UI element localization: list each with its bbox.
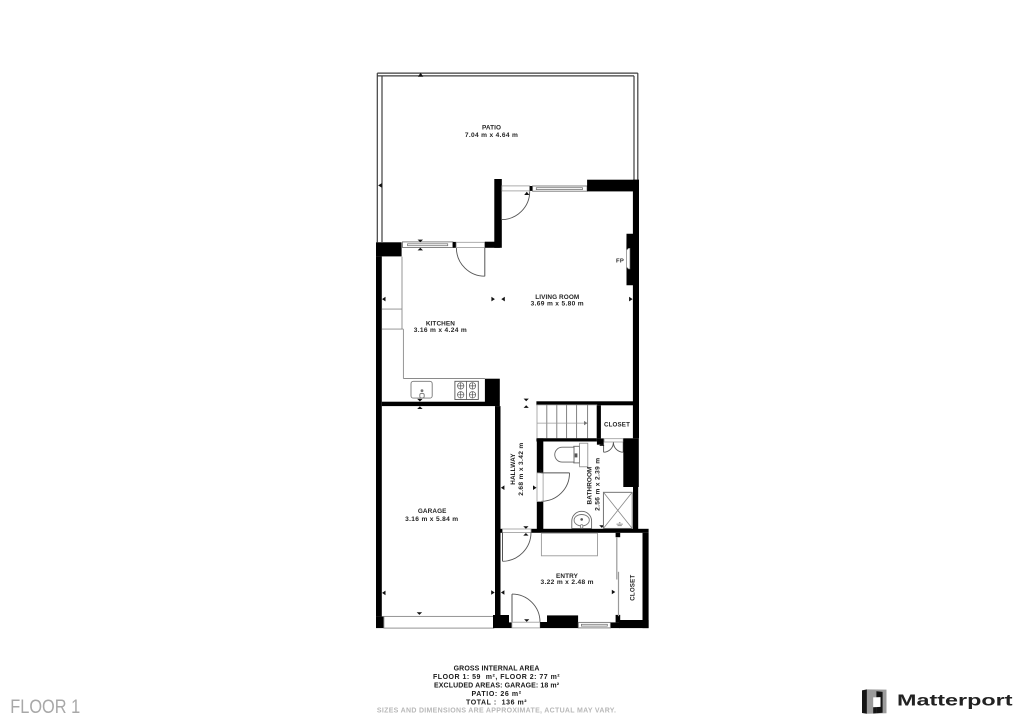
svg-text:GROSS INTERNAL AREA: GROSS INTERNAL AREA <box>454 666 540 673</box>
svg-text:3.16 m x 4.24 m: 3.16 m x 4.24 m <box>414 327 467 334</box>
svg-text:BATHROOM: BATHROOM <box>587 467 594 505</box>
svg-text:2.68 m x 3.42 m: 2.68 m x 3.42 m <box>518 442 525 495</box>
svg-text:CLOSET: CLOSET <box>604 422 630 429</box>
svg-text:3.16 m x 5.84 m: 3.16 m x 5.84 m <box>405 516 458 523</box>
svg-text:TOTAL : 136 m²: TOTAL : 136 m² <box>466 700 527 707</box>
svg-text:SIZES AND DIMENSIONS ARE APPRO: SIZES AND DIMENSIONS ARE APPROXIMATE, AC… <box>377 708 616 715</box>
svg-text:HALLWAY: HALLWAY <box>510 453 517 485</box>
svg-text:FLOOR 1: 59 m², FLOOR 2: 77 m: FLOOR 1: 59 m², FLOOR 2: 77 m² <box>433 674 560 681</box>
svg-text:3.69 m x 5.80 m: 3.69 m x 5.80 m <box>531 300 584 307</box>
svg-text:PATIO: 26 m²: PATIO: 26 m² <box>472 691 522 698</box>
svg-text:CLOSET: CLOSET <box>629 575 636 601</box>
svg-text:3.22 m x 2.48 m: 3.22 m x 2.48 m <box>541 579 594 586</box>
svg-text:FLOOR 1: FLOOR 1 <box>10 696 80 717</box>
svg-text:7.04 m x 4.64 m: 7.04 m x 4.64 m <box>465 132 518 139</box>
svg-text:2.56 m x 2.39 m: 2.56 m x 2.39 m <box>594 458 601 511</box>
svg-text:Matterport: Matterport <box>897 692 1013 710</box>
svg-text:PATIO: PATIO <box>482 125 501 132</box>
svg-text:FP: FP <box>616 259 624 265</box>
svg-text:EXCLUDED AREAS: GARAGE: 18 m²: EXCLUDED AREAS: GARAGE: 18 m² <box>434 683 560 690</box>
svg-text:GARAGE: GARAGE <box>418 508 447 515</box>
